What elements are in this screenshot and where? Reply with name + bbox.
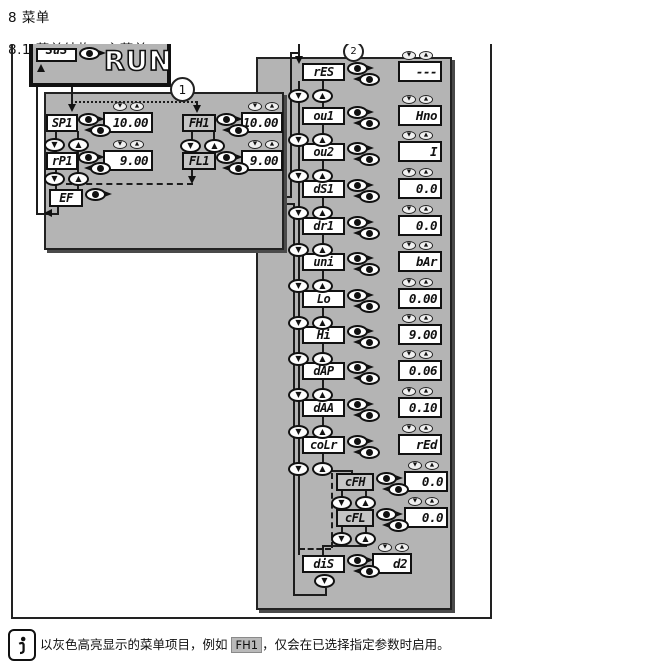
mode-enter-button-icon (85, 188, 106, 201)
up-button-icon: ▲ (395, 543, 409, 552)
mode-enter-button-icon (388, 519, 409, 532)
down-button-icon: ▼ (402, 350, 416, 359)
param-display: FL1 (182, 152, 216, 170)
mode-enter-button-icon (359, 73, 380, 86)
up-button-icon: ▲ (312, 352, 333, 366)
down-button-icon: ▼ (288, 316, 309, 330)
down-button-icon: ▼ (402, 168, 416, 177)
param-display: FH1 (182, 114, 216, 132)
down-button-icon: ▼ (314, 574, 335, 588)
up-button-icon: ▲ (312, 206, 333, 220)
param-display: cFH (336, 473, 374, 491)
down-button-icon: ▼ (180, 139, 201, 153)
param-display: rES (302, 63, 345, 81)
mode-enter-button-icon (79, 47, 100, 60)
down-button-icon: ▼ (402, 424, 416, 433)
menu-structure-figure: rES ▼▲ --- ▼▲ ou1 ▼▲ Hno ▼▲ ou2 ▼▲ I ▼▲ … (0, 44, 654, 622)
down-button-icon: ▼ (408, 497, 422, 506)
down-button-icon: ▼ (288, 169, 309, 183)
callout-1: 1 (170, 77, 195, 102)
footnote-text: ，仅会在已选择指定参数时启用。 (262, 637, 450, 652)
mode-enter-button-icon (359, 372, 380, 385)
connector-line (36, 72, 38, 215)
up-button-icon: ▲ (312, 169, 333, 183)
down-button-icon: ▼ (113, 102, 127, 111)
run-display: SuS (36, 48, 77, 62)
mode-enter-button-icon (359, 336, 380, 349)
value-display: Hno (398, 105, 442, 126)
value-display: --- (398, 61, 442, 82)
mode-enter-button-icon (228, 124, 249, 137)
down-button-icon: ▼ (248, 102, 262, 111)
manual-page: 8 菜单 8.1 菜单结构：主菜单 rES ▼▲ --- (0, 0, 654, 666)
down-button-icon: ▼ (408, 461, 422, 470)
down-button-icon: ▼ (113, 140, 127, 149)
info-icon (8, 629, 36, 661)
flow-arrow-down (68, 104, 76, 112)
up-button-icon: ▲ (419, 51, 433, 60)
value-display: rEd (398, 434, 442, 455)
down-button-icon: ▼ (288, 352, 309, 366)
mode-enter-button-icon (228, 162, 249, 175)
value-display: 0.0 (398, 215, 442, 236)
connector-line (322, 545, 324, 555)
down-button-icon: ▼ (44, 172, 65, 186)
up-button-icon: ▲ (68, 138, 89, 152)
mode-enter-button-icon (90, 162, 111, 175)
up-button-icon: ▲ (419, 95, 433, 104)
value-display: 0.00 (398, 288, 442, 309)
footnote: 以灰色高亮显示的菜单项目，例如 FH1，仅会在已选择指定参数时启用。 (40, 636, 646, 655)
run-mode-box: SuS RUN (29, 44, 171, 87)
mode-enter-button-icon (359, 565, 380, 578)
down-button-icon: ▼ (402, 205, 416, 214)
down-button-icon: ▼ (402, 387, 416, 396)
up-button-icon: ▲ (419, 241, 433, 250)
down-button-icon: ▼ (288, 279, 309, 293)
value-display: 0.10 (398, 397, 442, 418)
up-button-icon: ▲ (312, 279, 333, 293)
down-button-icon: ▼ (288, 133, 309, 147)
mode-enter-button-icon (359, 263, 380, 276)
down-button-icon: ▼ (288, 206, 309, 220)
value-display: I (398, 141, 442, 162)
up-button-icon: ▲ (419, 387, 433, 396)
value-display: bAr (398, 251, 442, 272)
chapter-heading: 8 菜单 (8, 6, 50, 26)
param-display: SP1 (46, 114, 78, 132)
flow-arrow-up (37, 64, 45, 72)
up-button-icon: ▲ (312, 316, 333, 330)
down-button-icon: ▼ (378, 543, 392, 552)
param-display: cFL (336, 509, 374, 527)
up-button-icon: ▲ (425, 497, 439, 506)
info-icon-glyph (14, 635, 30, 655)
up-button-icon: ▲ (419, 314, 433, 323)
value-display: 9.00 (398, 324, 442, 345)
down-button-icon: ▼ (288, 388, 309, 402)
mode-enter-button-icon (359, 446, 380, 459)
mode-enter-button-icon (359, 190, 380, 203)
down-button-icon: ▼ (402, 51, 416, 60)
down-button-icon: ▼ (288, 243, 309, 257)
up-button-icon: ▲ (312, 425, 333, 439)
value-display: 0.0 (398, 178, 442, 199)
up-button-icon: ▲ (130, 102, 144, 111)
highlighted-menu-item-example: FH1 (231, 637, 262, 653)
up-button-icon: ▲ (130, 140, 144, 149)
bypass-dashed-line (299, 548, 331, 550)
mode-enter-button-icon (388, 483, 409, 496)
up-button-icon: ▲ (425, 461, 439, 470)
up-button-icon: ▲ (312, 388, 333, 402)
down-button-icon: ▼ (331, 532, 352, 546)
down-button-icon: ▼ (248, 140, 262, 149)
mode-enter-button-icon (359, 153, 380, 166)
up-button-icon: ▲ (355, 532, 376, 546)
up-button-icon: ▲ (265, 140, 279, 149)
down-button-icon: ▼ (288, 89, 309, 103)
param-display: ou1 (302, 107, 345, 125)
up-button-icon: ▲ (68, 172, 89, 186)
up-button-icon: ▲ (419, 131, 433, 140)
down-button-icon: ▼ (44, 138, 65, 152)
value-display: 0.06 (398, 360, 442, 381)
up-button-icon: ▲ (312, 133, 333, 147)
down-button-icon: ▼ (402, 314, 416, 323)
footnote-text: 以灰色高亮显示的菜单项目，例如 (40, 637, 231, 652)
mode-enter-button-icon (90, 124, 111, 137)
mode-enter-button-icon (359, 117, 380, 130)
param-display: rP1 (46, 152, 78, 170)
down-button-icon: ▼ (288, 425, 309, 439)
down-button-icon: ▼ (402, 241, 416, 250)
down-button-icon: ▼ (402, 95, 416, 104)
mode-enter-button-icon (359, 227, 380, 240)
up-button-icon: ▲ (265, 102, 279, 111)
up-button-icon: ▲ (312, 462, 333, 476)
connector-line (290, 52, 300, 54)
up-button-icon: ▲ (419, 424, 433, 433)
mode-enter-button-icon (359, 300, 380, 313)
down-button-icon: ▼ (331, 496, 352, 510)
up-button-icon: ▲ (419, 168, 433, 177)
up-button-icon: ▲ (355, 496, 376, 510)
flow-arrow-left (44, 209, 52, 217)
down-button-icon: ▼ (402, 278, 416, 287)
param-display: EF (49, 189, 83, 207)
down-button-icon: ▼ (288, 462, 309, 476)
mode-enter-button-icon (359, 409, 380, 422)
flow-arrow-down (193, 105, 201, 113)
up-button-icon: ▲ (419, 205, 433, 214)
connector-line (293, 594, 327, 596)
down-button-icon: ▼ (402, 131, 416, 140)
up-button-icon: ▲ (312, 89, 333, 103)
up-button-icon: ▲ (419, 350, 433, 359)
param-display: diS (302, 555, 345, 573)
up-button-icon: ▲ (312, 243, 333, 257)
up-button-icon: ▲ (419, 278, 433, 287)
